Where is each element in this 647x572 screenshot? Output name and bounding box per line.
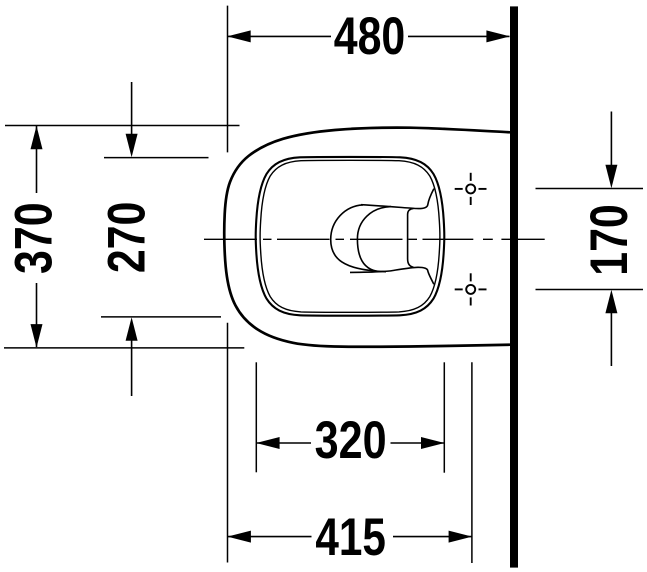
svg-text:170: 170 [580,204,639,276]
svg-text:415: 415 [315,508,386,567]
svg-text:270: 270 [97,202,156,274]
svg-text:370: 370 [5,202,64,274]
svg-text:480: 480 [334,7,406,66]
svg-text:320: 320 [315,411,387,470]
